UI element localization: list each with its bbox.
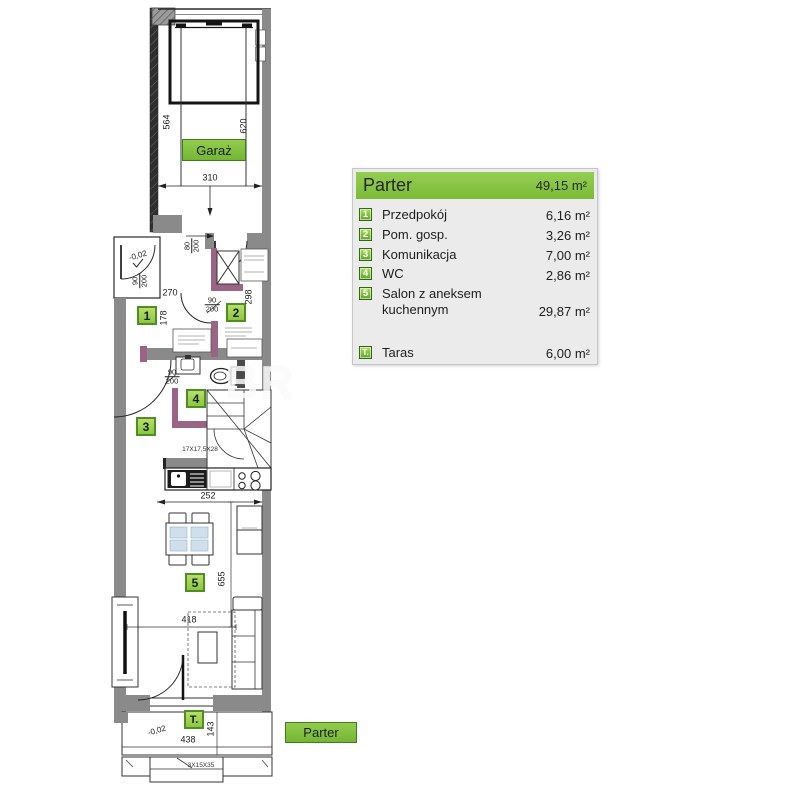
door-size-80-200: 80 200 (183, 239, 201, 254)
legend-room-name: Komunikacja (382, 247, 537, 263)
exterior-steps (122, 757, 272, 782)
dim-252: 252 (200, 492, 215, 501)
room-badge-1: 1 (137, 306, 157, 325)
floor-label: Parter (285, 722, 357, 743)
dim-620: 620 (240, 118, 249, 133)
room-badge-5: 5 (185, 573, 205, 592)
legend-room-name: Pom. gosp. (382, 227, 537, 243)
room-badge-4: 4 (186, 389, 206, 408)
dim-143: 143 (207, 721, 216, 736)
door-size-90-200-wc: 90 200 (165, 368, 180, 386)
legend-row-2: 2 Pom. gosp. 3,26 m² (359, 227, 590, 243)
dim-178: 178 (160, 310, 169, 325)
floor-plan-page: BR Garaż Parter 1 2 3 4 5 T. 564 620 310… (0, 0, 788, 785)
watermark: BR (225, 355, 295, 409)
dim-564: 564 (163, 114, 172, 129)
legend-room-area: 7,00 m² (546, 248, 590, 263)
dim-438: 438 (180, 736, 195, 745)
entry-porch (114, 237, 160, 298)
steps-note: 3X15X35 (188, 763, 215, 770)
room-badge-3: 3 (136, 417, 156, 436)
floor-plan-drawing (0, 0, 788, 785)
legend-row-terrace: T. Taras 6,00 m² (359, 345, 590, 361)
legend-total-area: 49,15 m² (536, 178, 587, 193)
legend-title: Parter (363, 175, 412, 196)
legend-badge-1: 1 (359, 208, 372, 221)
legend-header: Parter 49,15 m² (356, 172, 594, 199)
fridge-cabinet (237, 506, 262, 554)
dim-298: 298 (245, 289, 254, 304)
legend-room-area: 6,16 m² (546, 208, 590, 223)
door-size-90-200-entry: 90 200 (131, 274, 149, 289)
legend-room-name: Salon z aneksem kuchennym (382, 286, 530, 319)
legend-room-name: Przedpokój (382, 207, 537, 223)
legend-badge-5: 5 (359, 287, 372, 300)
dim-310: 310 (202, 174, 217, 183)
room-badge-2: 2 (226, 303, 246, 322)
legend-room-area: 29,87 m² (539, 304, 590, 319)
legend-rows: 1 Przedpokój 6,16 m² 2 Pom. gosp. 3,26 m… (356, 199, 594, 361)
dining-table (166, 513, 213, 565)
legend-row-4: 4 WC 2,86 m² (359, 266, 590, 282)
legend-badge-3: 3 (359, 248, 372, 261)
door-size-90-200-hall: 90 200 (205, 296, 220, 314)
legend-room-area: 3,26 m² (546, 228, 590, 243)
stair-note: 17X17,5X28 (182, 447, 218, 454)
legend-room-name: WC (382, 266, 537, 282)
dim-270: 270 (162, 289, 177, 298)
sofa (232, 597, 262, 689)
dim-418: 418 (181, 616, 196, 625)
utility-room (173, 248, 268, 357)
dim-line-310 (158, 184, 262, 217)
dim-655: 655 (218, 571, 227, 586)
dim-line-418 (127, 624, 236, 630)
legend-row-1: 1 Przedpokój 6,16 m² (359, 207, 590, 223)
garage-label: Garaż (182, 139, 246, 161)
legend-room-area: 6,00 m² (546, 346, 590, 361)
legend-badge-2: 2 (359, 228, 372, 241)
room-badge-t: T. (184, 710, 204, 729)
hall-walls (153, 215, 271, 249)
legend-room-name: Taras (382, 345, 537, 361)
legend-panel: Parter 49,15 m² 1 Przedpokój 6,16 m² 2 P… (352, 168, 598, 365)
kitchen-counter (165, 468, 271, 490)
left-window (112, 597, 138, 687)
legend-row-3: 3 Komunikacja 7,00 m² (359, 247, 590, 263)
legend-row-5: 5 Salon z aneksem kuchennym 29,87 m² (359, 286, 590, 319)
garage-door (170, 20, 258, 187)
legend-badge-4: 4 (359, 267, 372, 280)
legend-badge-t: T. (359, 346, 372, 359)
legend-room-area: 2,86 m² (546, 268, 590, 283)
